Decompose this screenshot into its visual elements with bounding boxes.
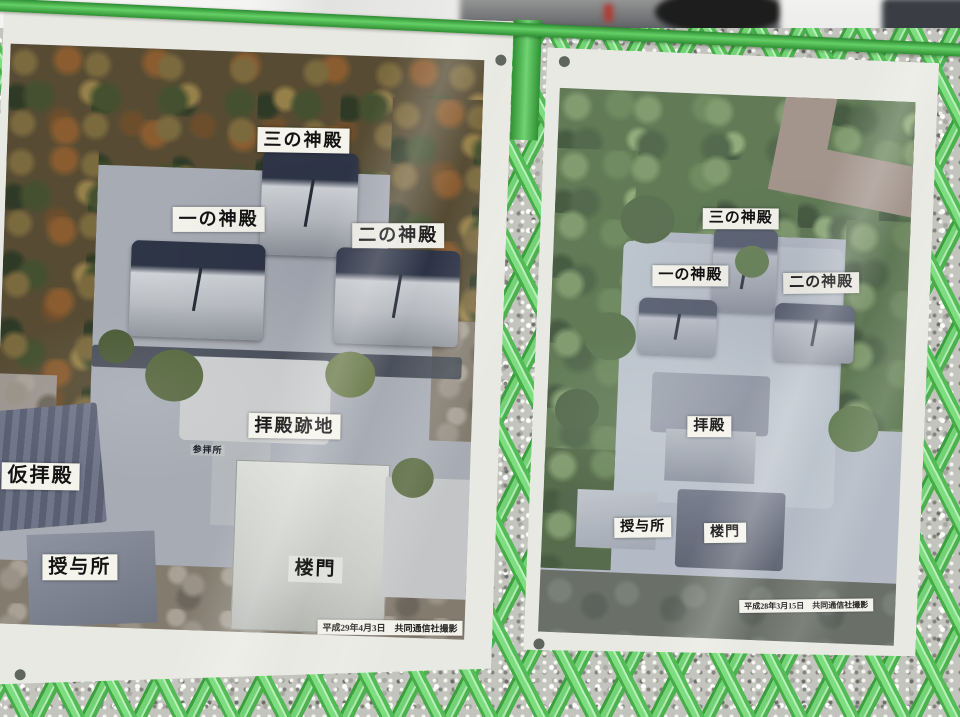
courtyard [382,477,470,600]
photo-panel-left: 三の神殿 一の神殿 二の神殿 拝殿跡地 参拝所 仮拝殿 授与所 楼門 平成29年… [0,3,514,702]
label-romon: 楼門 [288,556,343,584]
label-haiden-atochi: 拝殿跡地 [248,413,340,439]
haze-overlay [538,88,916,646]
photo-caption-left: 平成29年4月3日 共同通信社撮影 [317,620,462,636]
mounting-hole [533,638,544,649]
photo-panel-right: 三の神殿 一の神殿 二の神殿 拝殿 授与所 楼門 平成28年3月15日 共同通信… [523,47,939,674]
label-juyosho: 授与所 [614,517,671,537]
label-ni-no-shinden: 二の神殿 [783,272,859,294]
photo-caption-right: 平成28年3月15日 共同通信社撮影 [739,598,873,613]
shrine-hall-one-roof [129,240,266,341]
aerial-photo-right: 三の神殿 一の神殿 二の神殿 拝殿 授与所 楼門 平成28年3月15日 共同通信… [538,88,916,646]
fence-post [510,20,542,141]
shrine-hall-two-roof [333,247,460,347]
shrine-hall-three-roof [259,150,359,257]
label-san-no-shinden: 三の神殿 [703,208,779,229]
mounting-hole [14,669,25,680]
aerial-photo-left: 三の神殿 一の神殿 二の神殿 拝殿跡地 参拝所 仮拝殿 授与所 楼門 平成29年… [0,44,484,640]
label-karihaiden: 仮拝殿 [1,462,79,490]
label-ichi-no-shinden: 一の神殿 [173,207,265,232]
tree [325,351,377,399]
fence-notice-board-scene: 三の神殿 一の神殿 二の神殿 拝殿跡地 参拝所 仮拝殿 授与所 楼門 平成29年… [0,0,960,717]
mounting-hole [495,54,506,65]
forest-area [0,144,99,409]
label-haiden: 拝殿 [687,416,731,437]
label-san-no-shinden: 三の神殿 [257,127,349,153]
red-reflection [604,4,613,22]
label-ni-no-shinden: 二の神殿 [352,223,444,248]
label-ichi-no-shinden: 一の神殿 [652,265,728,286]
label-romon: 楼門 [704,523,746,543]
label-sanpaisho: 参拝所 [190,444,224,456]
label-juyosho: 授与所 [42,554,117,580]
romon-gate-cover [230,460,390,635]
mounting-hole [559,56,570,67]
